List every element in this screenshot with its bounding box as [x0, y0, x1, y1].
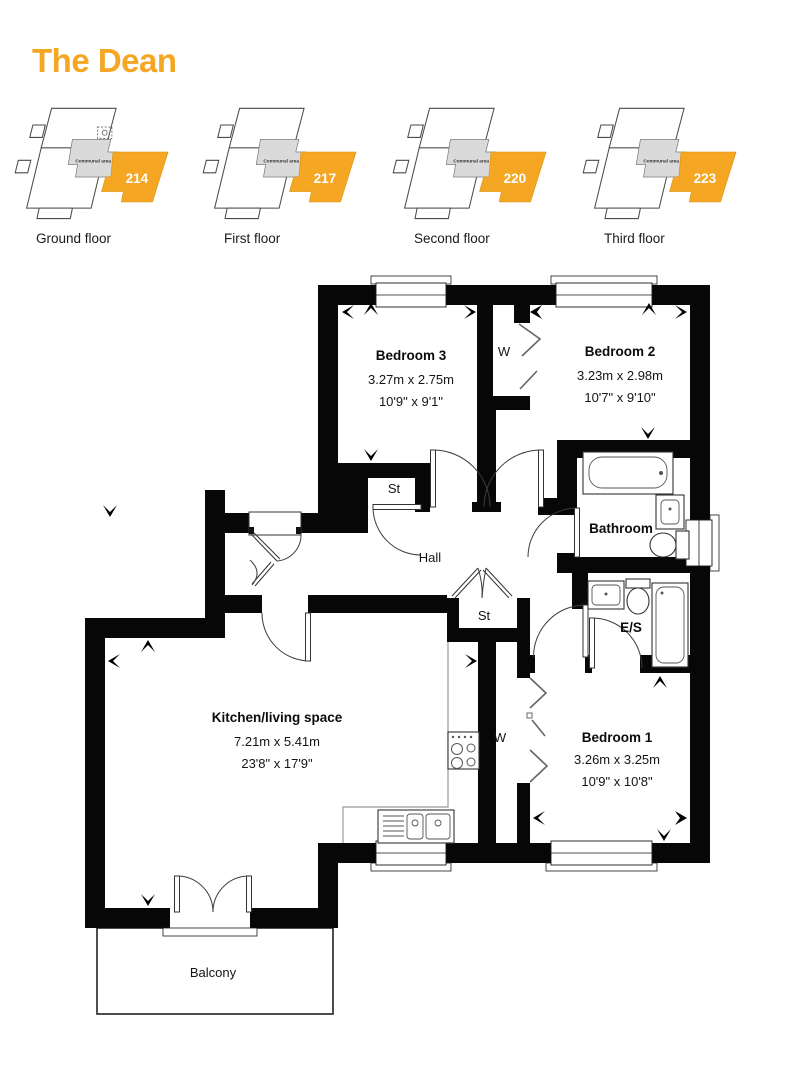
- door-leaf: [306, 613, 311, 661]
- kitchen-name: Kitchen/living space: [212, 710, 343, 725]
- door-leaf: [175, 876, 180, 912]
- hall-label: Hall: [419, 550, 442, 565]
- kitchen-imperial: 23'8" x 17'9": [241, 756, 313, 771]
- door-arc: [528, 508, 577, 557]
- bathroom-toilet-symbol: [650, 531, 689, 559]
- locator-third-floor: Communal area 223 Third floor: [578, 100, 760, 246]
- bathtub-symbol: [583, 452, 673, 494]
- door-leaf: [575, 508, 580, 557]
- locator-second-floor: Communal area 220 Second floor: [388, 100, 570, 246]
- ensuite-label: E/S: [620, 620, 642, 635]
- window-symbol: [163, 928, 257, 936]
- bedroom1-metric: 3.26m x 3.25m: [574, 752, 660, 767]
- floor-label: First floor: [198, 231, 380, 246]
- floorplan-drawing: Bedroom 3 3.27m x 2.75m 10'9" x 9'1" Bed…: [0, 270, 800, 1070]
- shower-symbol: [652, 583, 688, 667]
- building-footprint-map: Communal area 220: [388, 100, 570, 230]
- bedroom3-imperial: 10'9" x 9'1": [379, 394, 443, 409]
- kitchen-metric: 7.21m x 5.41m: [234, 734, 320, 749]
- communal-area-label: Communal area: [453, 158, 489, 164]
- communal-area-label: Communal area: [643, 158, 679, 164]
- door-leaf: [247, 876, 252, 912]
- bedroom3-name: Bedroom 3: [376, 348, 447, 363]
- door-leaf: [373, 505, 421, 510]
- bedroom2-metric: 3.23m x 2.98m: [577, 368, 663, 383]
- unit-number: 217: [314, 171, 337, 186]
- door-arc: [373, 507, 421, 555]
- communal-area-label: Communal area: [263, 158, 299, 164]
- unit-number: 220: [504, 171, 527, 186]
- building-footprint-map: Communal area 223: [578, 100, 760, 230]
- store-double-doors: [452, 568, 512, 598]
- door-leaf: [590, 618, 595, 668]
- building-footprint-map: Communal area 214: [10, 100, 192, 230]
- bedroom1-name: Bedroom 1: [582, 730, 653, 745]
- door-arc: [262, 613, 310, 661]
- floor-label: Ground floor: [10, 231, 192, 246]
- building-footprint-map: Communal area 217: [198, 100, 380, 230]
- unit-number: 223: [694, 171, 717, 186]
- floor-label: Third floor: [578, 231, 760, 246]
- door-leaf: [431, 450, 436, 507]
- bedroom1-imperial: 10'9" x 10'8": [581, 774, 653, 789]
- wardrobe-doors-symbol: [519, 324, 547, 782]
- door-leaf: [583, 605, 588, 657]
- wardrobe-bed1-label: W: [494, 730, 507, 745]
- bedroom3-metric: 3.27m x 2.75m: [368, 372, 454, 387]
- bathroom-sink-symbol: [656, 495, 684, 529]
- locator-ground-floor: Communal area 214 Ground floor: [10, 100, 192, 246]
- store1-label: St: [388, 481, 401, 496]
- ensuite-toilet-symbol: [626, 579, 650, 614]
- unit-number: 214: [126, 171, 149, 186]
- door-leaf: [539, 450, 544, 507]
- hob-symbol: [448, 732, 479, 769]
- locator-first-floor: Communal area 217 First floor: [198, 100, 380, 246]
- floor-label: Second floor: [388, 231, 570, 246]
- door-arc: [534, 605, 586, 657]
- wardrobe-top-label: W: [498, 344, 511, 359]
- bedroom2-imperial: 10'7" x 9'10": [584, 390, 656, 405]
- page-title: The Dean: [32, 42, 177, 80]
- entrance-door: [249, 512, 301, 586]
- kitchen-sink-symbol: [378, 810, 454, 843]
- bedroom2-name: Bedroom 2: [585, 344, 656, 359]
- balcony-label: Balcony: [190, 965, 237, 980]
- store2-label: St: [478, 608, 491, 623]
- communal-area-label: Communal area: [75, 158, 111, 164]
- bathroom-label: Bathroom: [589, 521, 653, 536]
- ensuite-sink-symbol: [588, 581, 624, 609]
- floorplan-page: The Dean Communal area 214 Ground floor: [0, 0, 800, 1070]
